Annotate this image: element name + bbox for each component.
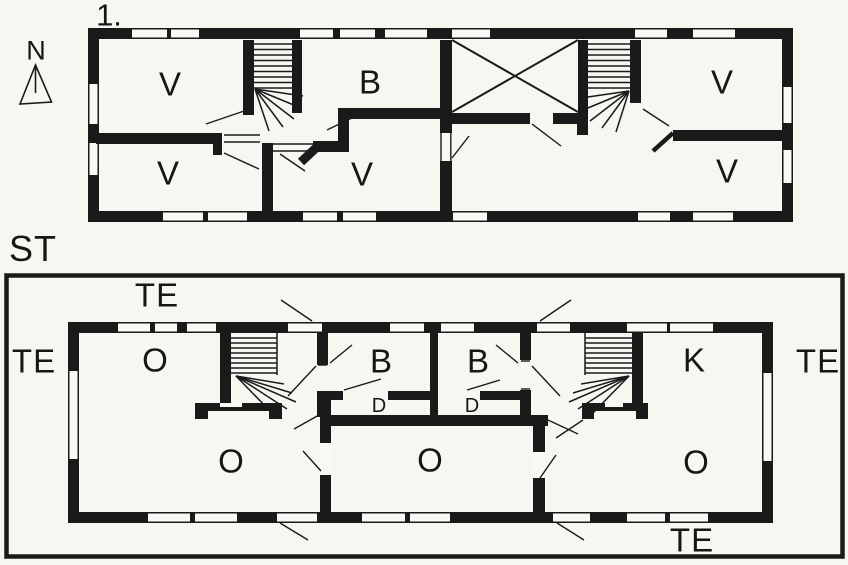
room-label-upper-v-top-right: V xyxy=(711,66,733,99)
upper-staircase-right xyxy=(581,44,630,132)
room-label-ground-b-right: B xyxy=(467,345,489,378)
room-label-upper-v-bottom-center: V xyxy=(351,158,373,191)
room-label-ground-k: K xyxy=(683,344,705,377)
room-label-ground-o-top-left: O xyxy=(142,344,168,377)
room-label-ground-b-left: B xyxy=(370,345,392,378)
north-arrow-icon xyxy=(20,65,52,104)
terrace-label-bottom: TE xyxy=(670,524,714,557)
ground-floor-title: ST xyxy=(9,231,57,267)
ground-staircase-right xyxy=(569,333,632,413)
ground-staircase-left xyxy=(231,333,296,413)
terrace-label-right: TE xyxy=(796,345,840,378)
terrace-label-top: TE xyxy=(135,279,179,312)
room-label-ground-o-bottom-left: O xyxy=(218,445,244,478)
room-label-ground-o-bottom-right: O xyxy=(683,446,709,479)
terrace-label-left: TE xyxy=(12,345,56,378)
compass-north-label: N xyxy=(26,38,46,65)
upper-floor-title: 1. xyxy=(96,0,122,31)
upper-interior-walls xyxy=(96,40,782,211)
room-label-ground-d-left: D xyxy=(372,396,386,416)
room-label-upper-v-bottom-left: V xyxy=(157,157,179,190)
room-label-ground-o-bottom-center: O xyxy=(417,444,443,477)
ground-floor-plan xyxy=(7,276,843,557)
room-label-upper-b: B xyxy=(359,66,381,99)
room-label-ground-d-right: D xyxy=(465,396,479,416)
room-label-upper-v-bottom-right: V xyxy=(716,155,738,188)
upper-floor-plan xyxy=(88,28,793,222)
room-label-upper-v-top-left: V xyxy=(159,68,181,101)
upper-void-cross-icon xyxy=(452,40,578,112)
floor-plan-sheet: 1. N V B V V V V ST TE TE TE TE O B B K … xyxy=(0,0,848,565)
